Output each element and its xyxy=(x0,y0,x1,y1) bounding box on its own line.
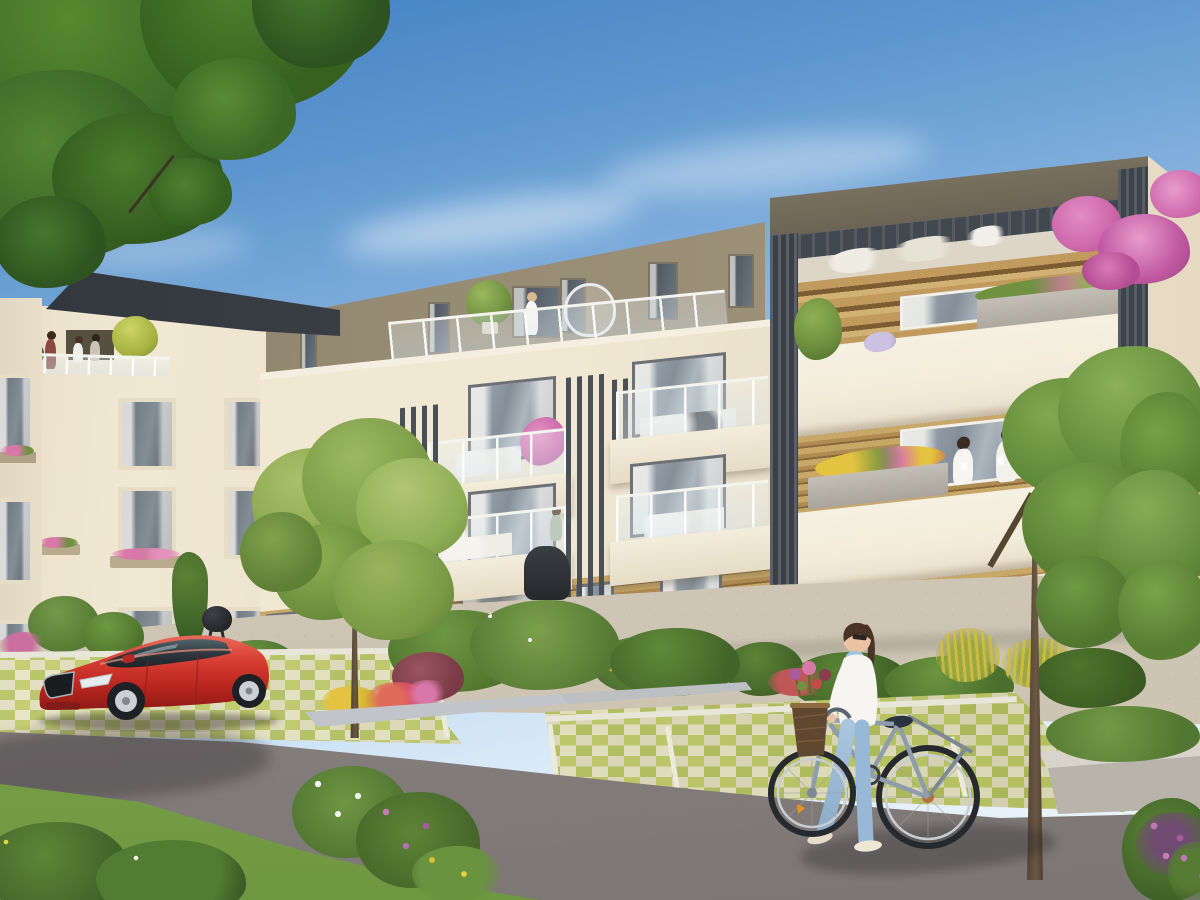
bougainvillea xyxy=(1150,170,1200,218)
car-grille xyxy=(44,672,74,698)
flower-box-blooms xyxy=(112,548,180,560)
rooftop-potted-tree xyxy=(794,298,842,360)
bicycle-front-hub xyxy=(807,788,817,798)
balcony-couple-woman xyxy=(950,435,976,488)
car-shadow xyxy=(38,712,278,730)
planter-bush xyxy=(470,600,620,690)
pergola-left-post xyxy=(770,233,798,616)
entrance-tree-canopy xyxy=(334,540,454,640)
drink-cup xyxy=(961,462,967,470)
basket-flowers xyxy=(789,661,831,696)
car-rear-wheel-hub xyxy=(246,688,253,695)
woman-leg-back xyxy=(862,727,866,840)
terrace-yellow-bush xyxy=(112,316,158,358)
car-front-wheel-hub xyxy=(122,697,130,705)
attic-window xyxy=(728,254,754,308)
left-edge-window xyxy=(0,498,34,584)
right-planter-grass xyxy=(1046,706,1200,762)
drink-cup xyxy=(998,456,1004,465)
car-lower-intake xyxy=(46,702,80,710)
flower-box-blooms xyxy=(0,445,34,456)
woman-with-bicycle xyxy=(760,600,1060,890)
overhanging-canopy xyxy=(172,58,296,160)
wheel-reflector-orange xyxy=(797,804,805,814)
bougainvillea xyxy=(1082,252,1140,290)
overhanging-canopy xyxy=(0,196,106,288)
basket-rim xyxy=(790,703,830,708)
entrance-tree-canopy xyxy=(240,512,322,592)
red-sedan-car xyxy=(30,628,290,733)
right-tree-canopy xyxy=(1118,560,1200,660)
left-annex-window xyxy=(118,398,176,470)
woman-shoe xyxy=(854,839,883,853)
architectural-rendering-scene xyxy=(0,0,1200,900)
dark-garden-chair xyxy=(524,546,570,600)
flower-box-blooms xyxy=(38,537,78,548)
meadow-yellow-patch xyxy=(412,846,502,900)
